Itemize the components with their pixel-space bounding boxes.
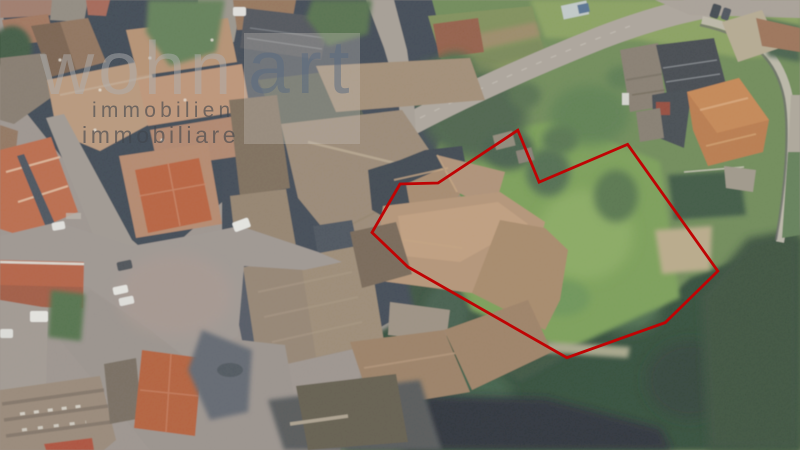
- svg-text:immobiliare: immobiliare: [82, 122, 239, 148]
- svg-text:art: art: [248, 25, 357, 109]
- svg-text:immobilien: immobilien: [92, 99, 234, 122]
- svg-text:wohn: wohn: [39, 26, 235, 110]
